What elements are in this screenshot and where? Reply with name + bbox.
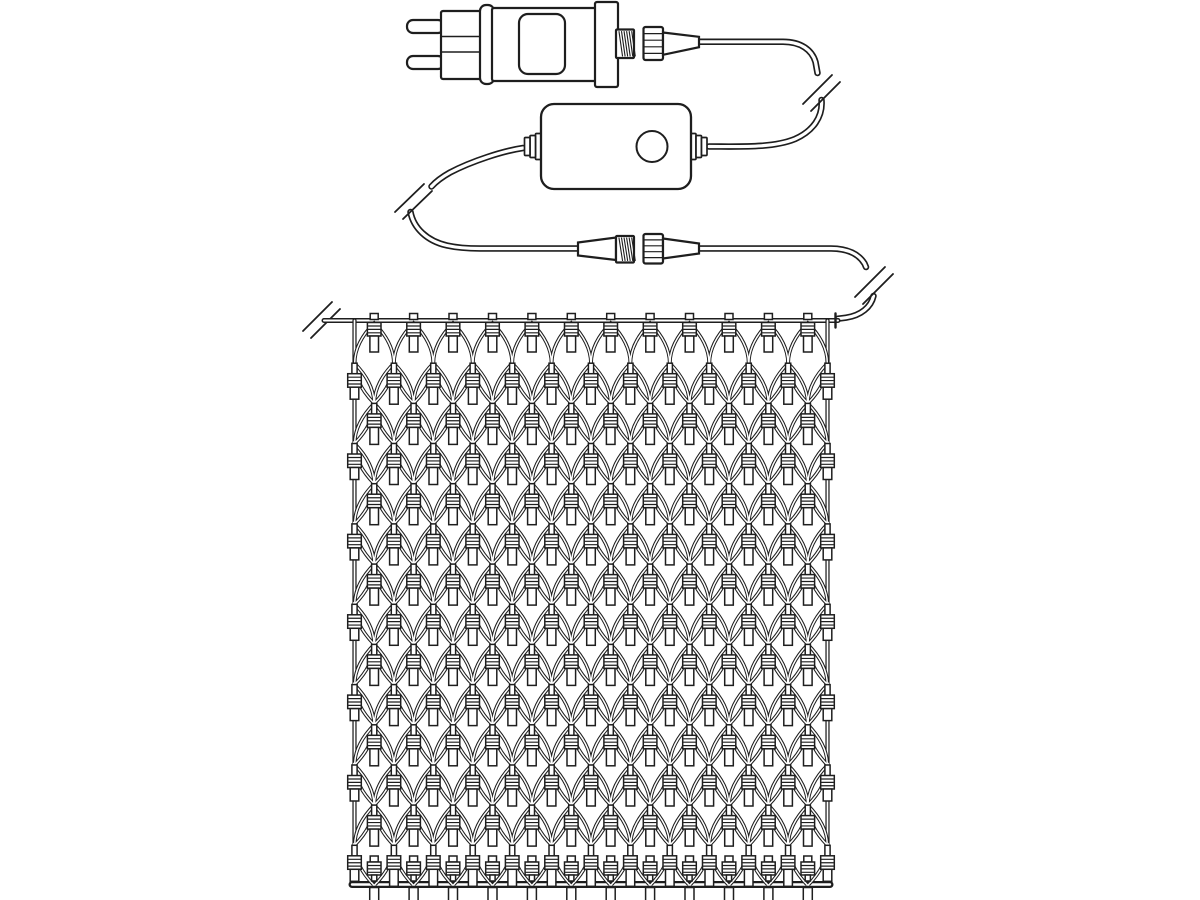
lamp-part — [528, 749, 537, 766]
lamp-part — [449, 829, 458, 846]
lamp-part — [823, 869, 832, 881]
lamp-part — [646, 829, 655, 846]
lamp-part — [744, 387, 753, 404]
lamp-part — [804, 314, 812, 320]
lamp-part — [726, 875, 731, 881]
lamp-part — [687, 644, 692, 655]
lamp-part — [725, 749, 734, 766]
lamp-part — [489, 314, 497, 320]
lamp-part — [725, 829, 734, 846]
lamp-part — [510, 524, 515, 535]
lamp-part — [667, 444, 672, 455]
lamp-part — [370, 336, 379, 352]
lamp-part — [764, 336, 773, 352]
lamp-part — [687, 875, 692, 881]
lamp-part — [450, 644, 455, 655]
lamp-part — [804, 829, 813, 846]
lamp-part — [707, 524, 712, 535]
lamp-part — [587, 869, 596, 886]
lamp-part — [567, 856, 575, 862]
lamp-part — [726, 403, 731, 414]
lamp-part — [784, 468, 793, 485]
lamp-part — [705, 869, 714, 886]
lamp-part — [352, 444, 357, 455]
lamp-part — [646, 888, 655, 900]
lamp-part — [549, 524, 554, 535]
lamp-part — [805, 805, 810, 816]
lamp-part — [707, 604, 712, 615]
lamp-part — [528, 668, 537, 685]
lamp-part — [705, 628, 714, 645]
lamp-part — [648, 403, 653, 414]
lamp-part — [370, 856, 378, 862]
net-lights-diagram — [0, 0, 1200, 900]
lamp-part — [468, 548, 477, 565]
lamp-part — [372, 805, 377, 816]
lamp-part — [628, 845, 633, 856]
lamp-part — [648, 484, 653, 495]
lamp-part — [549, 845, 554, 856]
lamp-part — [352, 524, 357, 535]
lamp-part — [390, 709, 399, 726]
lamp-part — [470, 845, 475, 856]
lamp-part — [411, 725, 416, 736]
lamp-part — [409, 668, 418, 685]
lamp-part — [429, 789, 438, 806]
lamp-part — [449, 336, 458, 352]
lamp-part — [685, 508, 694, 525]
lamp-part — [490, 875, 495, 881]
lamp-part — [606, 888, 615, 900]
lamp-part — [608, 805, 613, 816]
lamp-part — [528, 314, 536, 320]
lamp-part — [825, 604, 830, 615]
lamp-part — [409, 749, 418, 766]
lamp-part — [488, 668, 497, 685]
lamp-part — [391, 524, 396, 535]
lamp-part — [725, 888, 734, 900]
lamp-part — [707, 765, 712, 776]
lamp-part — [786, 765, 791, 776]
plug-female-screw-cap — [644, 27, 664, 60]
lamp-part — [567, 829, 576, 846]
lamp-part — [529, 564, 534, 575]
lamp-part — [350, 789, 359, 801]
lamp-part — [547, 468, 556, 485]
lamp-part — [510, 845, 515, 856]
lamp-part — [764, 856, 772, 862]
lamp-part — [450, 484, 455, 495]
lamp-part — [667, 363, 672, 374]
lamp-part — [764, 508, 773, 525]
lamp-part — [825, 524, 830, 535]
lamp-part — [508, 628, 517, 645]
lamp-part — [490, 644, 495, 655]
lamp-part — [567, 888, 576, 900]
lamp-part — [626, 789, 635, 806]
lamp-part — [648, 875, 653, 881]
lamp-part — [370, 588, 379, 605]
lamp-part — [350, 468, 359, 480]
lamp-part — [429, 468, 438, 485]
lamp-part — [606, 508, 615, 525]
lamp-part — [705, 387, 714, 404]
lamp-part — [567, 314, 575, 320]
lamp-part — [468, 789, 477, 806]
lamp-part — [391, 765, 396, 776]
lamp-part — [666, 548, 675, 565]
lamp-part — [431, 685, 436, 696]
lamp-part — [508, 869, 517, 886]
lamp-part — [569, 725, 574, 736]
lamp-part — [707, 363, 712, 374]
lamp-part — [744, 789, 753, 806]
lamp-part — [549, 604, 554, 615]
lamp-part — [567, 668, 576, 685]
lamp-part — [786, 845, 791, 856]
lamp-part — [431, 363, 436, 374]
lamp-part — [529, 805, 534, 816]
lamp-part — [569, 484, 574, 495]
lamp-part — [508, 387, 517, 404]
lamp-part — [449, 508, 458, 525]
lamp-part — [784, 869, 793, 886]
lamp-part — [429, 869, 438, 886]
lamp-part — [470, 524, 475, 535]
lamp-part — [508, 789, 517, 806]
lamp-part — [766, 725, 771, 736]
lamp-part — [726, 484, 731, 495]
lamp-part — [431, 524, 436, 535]
lamp-part — [370, 508, 379, 525]
lamp-part — [804, 336, 813, 352]
lamp-part — [391, 444, 396, 455]
lamp-part — [488, 588, 497, 605]
lamp-part — [805, 644, 810, 655]
lamp-part — [707, 845, 712, 856]
lamp-part — [687, 805, 692, 816]
lamp-part — [450, 875, 455, 881]
lamp-part — [567, 427, 576, 444]
lamp-part — [666, 387, 675, 404]
lamp-part — [746, 604, 751, 615]
lamp-part — [587, 628, 596, 645]
lamp-part — [431, 604, 436, 615]
lamp-part — [667, 524, 672, 535]
lamp-part — [529, 875, 534, 881]
lamp-part — [685, 427, 694, 444]
lamp-part — [529, 725, 534, 736]
lamp-part — [390, 468, 399, 485]
lamp-part — [825, 444, 830, 455]
lamp-part — [667, 604, 672, 615]
lamp-part — [410, 314, 418, 320]
lamp-part — [549, 363, 554, 374]
net-lights-diagram-page — [0, 0, 1200, 900]
lamp-part — [449, 749, 458, 766]
lamp-part — [470, 363, 475, 374]
lamp-part — [547, 628, 556, 645]
lamp-part — [606, 336, 615, 352]
lamp-part — [449, 314, 457, 320]
lamp-part — [587, 387, 596, 404]
lamp-part — [390, 548, 399, 565]
lamp-part — [823, 789, 832, 801]
lamp-part — [786, 604, 791, 615]
lamp-part — [766, 564, 771, 575]
lamp-part — [529, 484, 534, 495]
lamp-part — [350, 869, 359, 881]
lamp-part — [569, 564, 574, 575]
lamp-part — [391, 845, 396, 856]
connector-female-screw-cap — [644, 234, 664, 264]
lamp-part — [685, 749, 694, 766]
lamp-part — [468, 468, 477, 485]
lamp-part — [470, 685, 475, 696]
lamp-part — [685, 588, 694, 605]
lamp-part — [646, 314, 654, 320]
lamp-part — [411, 875, 416, 881]
lamp-part — [803, 888, 812, 900]
lamp-part — [470, 765, 475, 776]
lamp-part — [764, 314, 772, 320]
lamp-part — [370, 314, 378, 320]
lamp-part — [628, 685, 633, 696]
lamp-part — [567, 749, 576, 766]
lamp-part — [350, 709, 359, 721]
lamp-part — [529, 403, 534, 414]
lamp-part — [786, 524, 791, 535]
lamp-part — [370, 749, 379, 766]
lamp-part — [449, 856, 457, 862]
lamp-part — [587, 789, 596, 806]
lamp-part — [666, 628, 675, 645]
lamp-part — [804, 427, 813, 444]
lamp-part — [766, 644, 771, 655]
lamp-part — [567, 508, 576, 525]
plug-front-block — [441, 11, 484, 79]
lamp-part — [766, 805, 771, 816]
lamp-part — [606, 668, 615, 685]
lamp-part — [726, 564, 731, 575]
lamp-part — [786, 363, 791, 374]
strain-relief-left — [525, 138, 531, 156]
lamp-part — [569, 875, 574, 881]
lamp-part — [626, 869, 635, 886]
lamp-part — [766, 484, 771, 495]
lamp-part — [468, 628, 477, 645]
lamp-part — [490, 805, 495, 816]
lamp-part — [667, 685, 672, 696]
lamp-part — [666, 869, 675, 886]
lamp-part — [488, 427, 497, 444]
lamp-part — [588, 363, 593, 374]
lamp-part — [409, 427, 418, 444]
lamp-part — [429, 548, 438, 565]
lamp-part — [608, 484, 613, 495]
lamp-part — [529, 644, 534, 655]
lamp-part — [746, 845, 751, 856]
lamp-part — [626, 387, 635, 404]
lamp-part — [508, 548, 517, 565]
lamp-part — [764, 888, 773, 900]
lamp-part — [746, 685, 751, 696]
lamp-part — [547, 869, 556, 886]
lamp-part — [687, 484, 692, 495]
lamp-part — [646, 508, 655, 525]
lamp-part — [490, 725, 495, 736]
lamp-part — [411, 484, 416, 495]
lamp-part — [410, 856, 418, 862]
lamp-part — [411, 564, 416, 575]
lamp-part — [528, 829, 537, 846]
lamp-part — [646, 668, 655, 685]
lamp-part — [470, 444, 475, 455]
lamp-part — [666, 468, 675, 485]
lamp-part — [508, 468, 517, 485]
lamp-part — [569, 403, 574, 414]
lamp-part — [449, 427, 458, 444]
lamp-part — [409, 588, 418, 605]
lamp-part — [490, 564, 495, 575]
lamp-part — [528, 427, 537, 444]
plug-label-window — [519, 14, 565, 74]
lamp-part — [626, 548, 635, 565]
lamp-part — [391, 685, 396, 696]
lamp-part — [390, 789, 399, 806]
lamp-part — [350, 548, 359, 560]
lamp-part — [567, 336, 576, 352]
lamp-part — [805, 875, 810, 881]
lamp-part — [372, 875, 377, 881]
lamp-part — [685, 888, 694, 900]
lamp-part — [606, 588, 615, 605]
lamp-part — [370, 427, 379, 444]
lamp-part — [510, 685, 515, 696]
lamp-part — [725, 314, 733, 320]
lamp-part — [804, 749, 813, 766]
lamp-part — [449, 668, 458, 685]
lamp-part — [725, 427, 734, 444]
lamp-part — [547, 548, 556, 565]
plug-flange — [595, 2, 618, 87]
lamp-part — [411, 644, 416, 655]
lamp-part — [606, 829, 615, 846]
lamp-part — [786, 444, 791, 455]
controller-box-group — [525, 104, 708, 189]
lamp-part — [648, 805, 653, 816]
lamp-part — [687, 564, 692, 575]
lamp-part — [587, 548, 596, 565]
lamp-part — [764, 588, 773, 605]
lamp-part — [606, 749, 615, 766]
lamp-part — [764, 427, 773, 444]
lamp-part — [687, 403, 692, 414]
lamp-part — [450, 805, 455, 816]
lamp-part — [547, 789, 556, 806]
lamp-part — [587, 709, 596, 726]
plug-prong-2 — [407, 56, 444, 69]
lamp-part — [726, 805, 731, 816]
lamp-part — [490, 403, 495, 414]
lamp-part — [823, 548, 832, 560]
lamp-part — [567, 588, 576, 605]
lamp-part — [528, 508, 537, 525]
lamp-part — [352, 765, 357, 776]
lamp-part — [648, 725, 653, 736]
lamp-part — [746, 444, 751, 455]
lamp-part — [628, 524, 633, 535]
lamp-part — [805, 725, 810, 736]
lamp-part — [784, 387, 793, 404]
lamp-part — [370, 668, 379, 685]
lamp-part — [409, 888, 418, 900]
lamp-part — [825, 363, 830, 374]
lamp-part — [823, 709, 832, 721]
lamp-part — [725, 668, 734, 685]
lamp-part — [528, 336, 537, 352]
lamp-part — [411, 805, 416, 816]
lamp-part — [411, 403, 416, 414]
lamp-part — [825, 685, 830, 696]
lamp-part — [725, 856, 733, 862]
lamp-part — [805, 403, 810, 414]
lamp-part — [823, 387, 832, 399]
lamp-part — [666, 789, 675, 806]
lamp-part — [372, 484, 377, 495]
lamp-part — [606, 427, 615, 444]
lamp-part — [588, 444, 593, 455]
lamp-part — [705, 709, 714, 726]
lamp-part — [588, 845, 593, 856]
lamp-part — [431, 845, 436, 856]
lamp-part — [744, 709, 753, 726]
lamp-part — [409, 336, 418, 352]
lamp-part — [588, 524, 593, 535]
lamp-part — [588, 685, 593, 696]
lamp-part — [746, 765, 751, 776]
lamp-part — [726, 725, 731, 736]
lamp-part — [804, 508, 813, 525]
lamp-part — [608, 875, 613, 881]
lamp-part — [391, 604, 396, 615]
lamp-part — [549, 765, 554, 776]
lamp-part — [746, 363, 751, 374]
lamp-part — [608, 564, 613, 575]
lamp-part — [488, 829, 497, 846]
lamp-part — [588, 765, 593, 776]
lamp-part — [510, 444, 515, 455]
lamp-part — [429, 628, 438, 645]
lamp-part — [705, 468, 714, 485]
lamp-part — [390, 628, 399, 645]
lamp-part — [372, 564, 377, 575]
lamp-part — [488, 888, 497, 900]
lamp-part — [490, 484, 495, 495]
lamp-part — [449, 888, 458, 900]
lamp-part — [569, 805, 574, 816]
lamp-part — [626, 628, 635, 645]
lamp-part — [646, 856, 654, 862]
lamp-part — [547, 387, 556, 404]
lamp-part — [587, 468, 596, 485]
lamp-part — [390, 869, 399, 886]
plug-prong-1 — [407, 20, 444, 33]
lamp-part — [744, 548, 753, 565]
lamp-part — [391, 363, 396, 374]
lamp-part — [744, 869, 753, 886]
lamp-part — [705, 548, 714, 565]
